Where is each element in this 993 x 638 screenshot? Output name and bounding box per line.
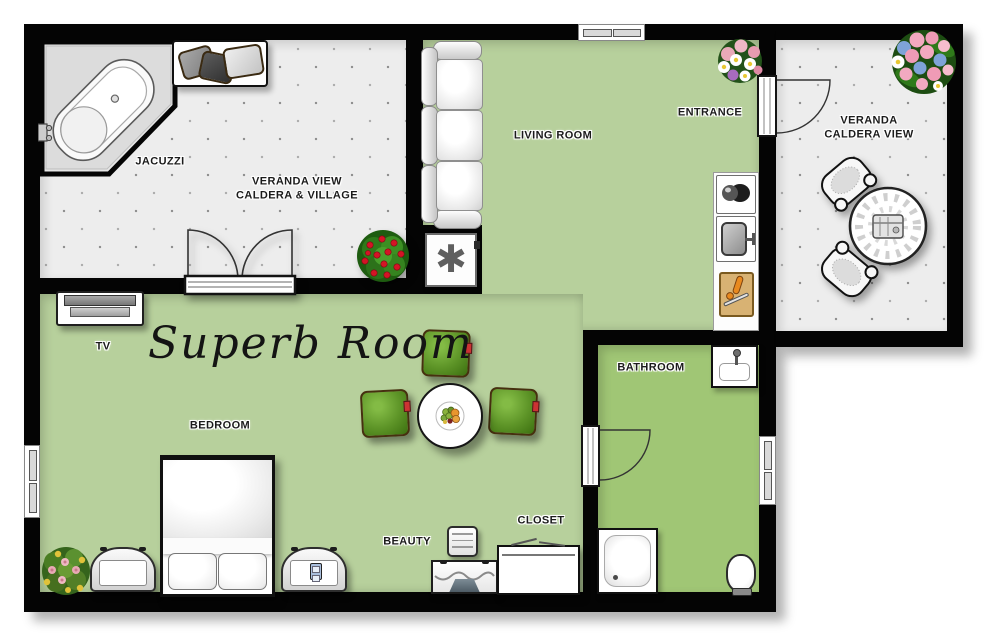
ac-unit: ✱ [425,233,477,287]
kitchenette [713,172,759,331]
entrance-bouquet [714,36,766,86]
toilet-base [732,588,752,596]
cooktop [716,175,756,214]
pillow-shelf [172,40,268,87]
room-label-veranda-view: VERANDA VIEW CALDERA & VILLAGE [236,176,358,203]
window-bathroom [759,436,776,505]
room-label-closet: CLOSET [517,514,564,528]
fruit-plate [435,401,465,431]
bathroom-sink [711,345,758,388]
beauty-stool [447,526,478,557]
bed [160,455,275,597]
nightstand-right [281,547,347,592]
veranda-table-set [812,155,964,301]
room-label-jacuzzi: JACUZZI [135,155,184,169]
room-label-bathroom: BATHROOM [617,361,684,375]
coffee-table [417,383,483,449]
toilet [726,554,756,592]
label-beauty: BEAUTY [383,535,431,549]
sofa [421,41,484,229]
asterisk-icon: ✱ [435,241,467,279]
vanity-table [431,560,498,594]
nightstand-left [90,547,156,592]
corner-plant [38,542,94,600]
bed-pillow-right [218,553,267,590]
floor-plan: ✱ [0,0,993,638]
room-label-living-room: LIVING ROOM [514,129,592,143]
flower-bush [354,227,412,287]
pillow-light [222,43,265,80]
shower-tray [597,528,658,594]
window-bedroom-left [24,445,40,518]
room-label-bedroom: BEDROOM [190,419,250,433]
french-doors [178,220,302,300]
plan-title: Superb Room [148,318,474,369]
table-basket [873,215,903,238]
floor-cushion-left [360,389,410,438]
window-top [578,24,645,41]
cutting-board [719,272,754,317]
veranda-bouquet [884,26,964,98]
phone [310,563,322,580]
closet-wardrobe [497,545,580,595]
tv-unit [56,291,144,326]
room-label-veranda-caldera: VERANDA CALDERA VIEW [824,115,913,142]
room-label-entrance: ENTRANCE [678,106,742,120]
label-tv: TV [96,340,111,354]
floor-cushion-right [488,387,538,436]
bathroom-door [580,422,656,490]
bed-pillow-left [168,553,217,590]
kitchen-sink [716,216,756,262]
